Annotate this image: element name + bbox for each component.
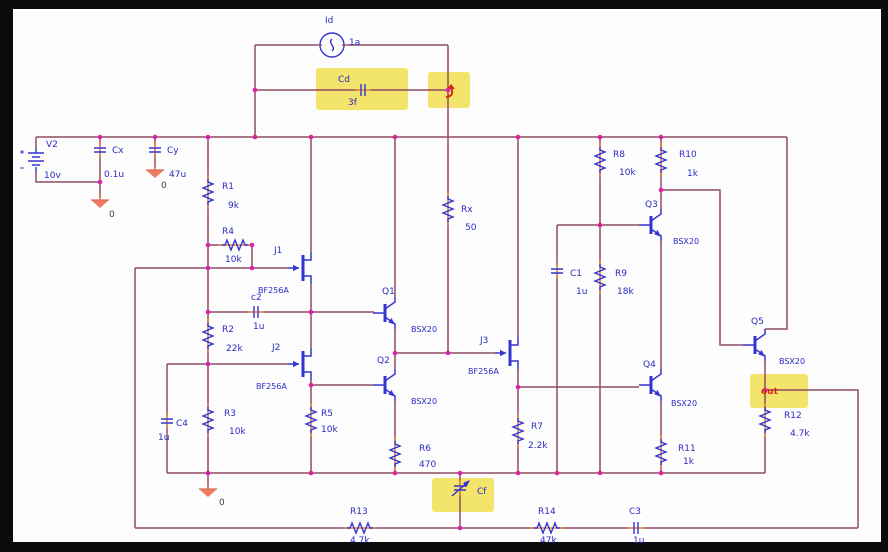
label-r8-name: R8 xyxy=(613,150,625,160)
label-ground-0: 0 xyxy=(109,210,115,220)
label-r4-name: R4 xyxy=(222,227,234,237)
net-label-out: out xyxy=(761,387,779,397)
label-id-value: 1a xyxy=(349,38,360,48)
label-j3-model: BF256A xyxy=(468,367,499,376)
label-q2-model: BSX20 xyxy=(411,397,437,406)
label-r6-name: R6 xyxy=(419,444,431,454)
label-j1-name: J1 xyxy=(273,246,282,256)
label-r14-name: R14 xyxy=(538,507,556,517)
label-c4-value: 1u xyxy=(158,433,169,443)
label-r7-name: R7 xyxy=(531,422,543,432)
label-r5-name: R5 xyxy=(321,409,333,419)
label-r5-value: 10k xyxy=(321,425,338,435)
label-cy-name: Cy xyxy=(167,146,179,156)
label-r13-name: R13 xyxy=(350,507,368,517)
label-r11-value: 1k xyxy=(683,457,695,467)
label-v2-value: 10v xyxy=(44,171,61,181)
label-r10-name: R10 xyxy=(679,150,697,160)
label-r7-value: 2.2k xyxy=(528,441,548,451)
label-c2-value: 1u xyxy=(253,322,264,332)
highlight-box-cd xyxy=(316,68,408,110)
label-q3-name: Q3 xyxy=(645,200,658,210)
label-j2-name: J2 xyxy=(271,343,280,353)
label-c3-name: C3 xyxy=(629,507,641,517)
label-r8-value: 10k xyxy=(619,168,636,178)
label-r11-name: R11 xyxy=(678,444,696,454)
schematic-screenshot: V2 10v Id 1a Cd 3f Cx 0.1u Cy 47u R1 9k … xyxy=(0,0,888,552)
label-ground-0: 0 xyxy=(219,498,225,508)
label-cd-value: 3f xyxy=(348,98,358,108)
label-q5-name: Q5 xyxy=(751,317,764,327)
highlight-box-out xyxy=(750,374,808,408)
label-q1-model: BSX20 xyxy=(411,325,437,334)
label-c3-value: 1u xyxy=(633,536,644,546)
label-cd-name: Cd xyxy=(338,75,350,85)
label-cy-value: 47u xyxy=(169,170,186,180)
label-c4-name: C4 xyxy=(176,419,188,429)
label-r4-value: 10k xyxy=(225,255,242,265)
label-cx-value: 0.1u xyxy=(104,170,124,180)
label-r12-name: R12 xyxy=(784,411,802,421)
label-q2-name: Q2 xyxy=(377,356,390,366)
label-r2-name: R2 xyxy=(222,325,234,335)
label-r12-value: 4.7k xyxy=(790,429,810,439)
label-r14-value: 47k xyxy=(540,536,557,546)
label-q5-model: BSX20 xyxy=(779,357,805,366)
label-cx-name: Cx xyxy=(112,146,124,156)
label-r6-value: 470 xyxy=(419,460,436,470)
label-r2-value: 22k xyxy=(226,344,243,354)
label-ground-0: 0 xyxy=(161,181,167,191)
label-rx-name: Rx xyxy=(461,205,473,215)
label-r3-value: 10k xyxy=(229,427,246,437)
label-v2-name: V2 xyxy=(46,140,58,150)
label-r1-value: 9k xyxy=(228,201,240,211)
label-q1-name: Q1 xyxy=(382,287,395,297)
label-r1-name: R1 xyxy=(222,182,234,192)
label-r3-name: R3 xyxy=(224,409,236,419)
label-r13-value: 4.7k xyxy=(350,536,370,546)
label-cf-name: Cf xyxy=(477,487,487,497)
label-q3-model: BSX20 xyxy=(673,237,699,246)
label-j3-name: J3 xyxy=(479,336,488,346)
label-c2-name: c2 xyxy=(251,293,262,303)
label-rx-value: 50 xyxy=(465,223,477,233)
label-c1-name: C1 xyxy=(570,269,582,279)
label-c1-value: 1u xyxy=(576,287,587,297)
label-r9-name: R9 xyxy=(615,269,627,279)
label-r9-value: 18k xyxy=(617,287,634,297)
label-q4-name: Q4 xyxy=(643,360,656,370)
label-q4-model: BSX20 xyxy=(671,399,697,408)
label-j2-model: BF256A xyxy=(256,382,287,391)
circuit-canvas: V2 10v Id 1a Cd 3f Cx 0.1u Cy 47u R1 9k … xyxy=(0,0,888,552)
label-id-name: Id xyxy=(325,16,333,26)
label-j1-model: BF256A xyxy=(258,286,289,295)
label-r10-value: 1k xyxy=(687,169,699,179)
